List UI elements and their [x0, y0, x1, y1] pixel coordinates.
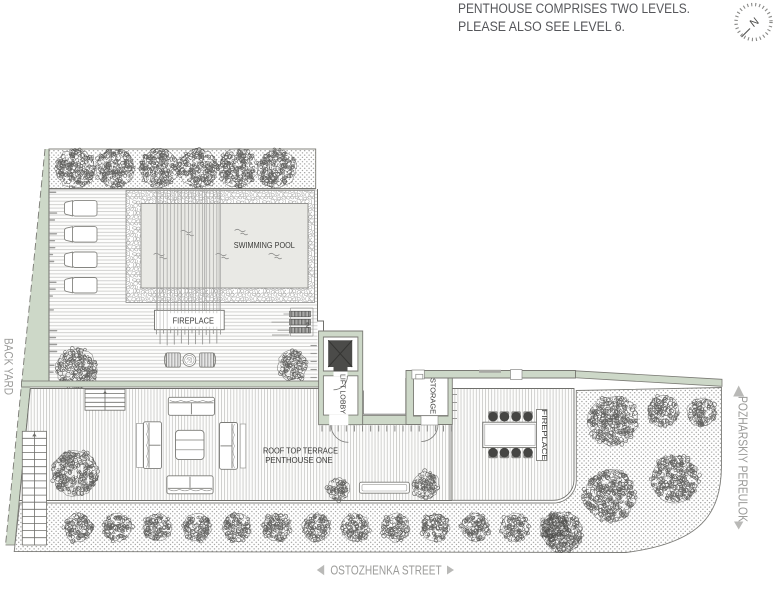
svg-text:ROOF TOP TERRACE: ROOF TOP TERRACE: [263, 447, 338, 456]
svg-text:PENTHOUSE ONE: PENTHOUSE ONE: [265, 456, 333, 465]
svg-text:FIREPLACE: FIREPLACE: [173, 317, 215, 326]
svg-text:PLEASE ALSO SEE LEVEL 6.: PLEASE ALSO SEE LEVEL 6.: [458, 19, 625, 34]
svg-text:OSTOZHENKA STREET: OSTOZHENKA STREET: [330, 563, 441, 578]
svg-text:STORAGE: STORAGE: [429, 378, 438, 414]
svg-text:PENTHOUSE COMPRISES TWO LEVELS: PENTHOUSE COMPRISES TWO LEVELS.: [458, 1, 690, 16]
svg-text:BACK YARD: BACK YARD: [2, 338, 14, 395]
svg-text:SWIMMING POOL: SWIMMING POOL: [234, 241, 295, 250]
svg-text:6M: 6M: [305, 322, 310, 329]
svg-text:POZHARSKIY PEREULOK: POZHARSKIY PEREULOK: [736, 396, 750, 522]
svg-text:FIREPLACE: FIREPLACE: [540, 410, 547, 461]
svg-text:LIFT LOBBY: LIFT LOBBY: [339, 374, 348, 414]
